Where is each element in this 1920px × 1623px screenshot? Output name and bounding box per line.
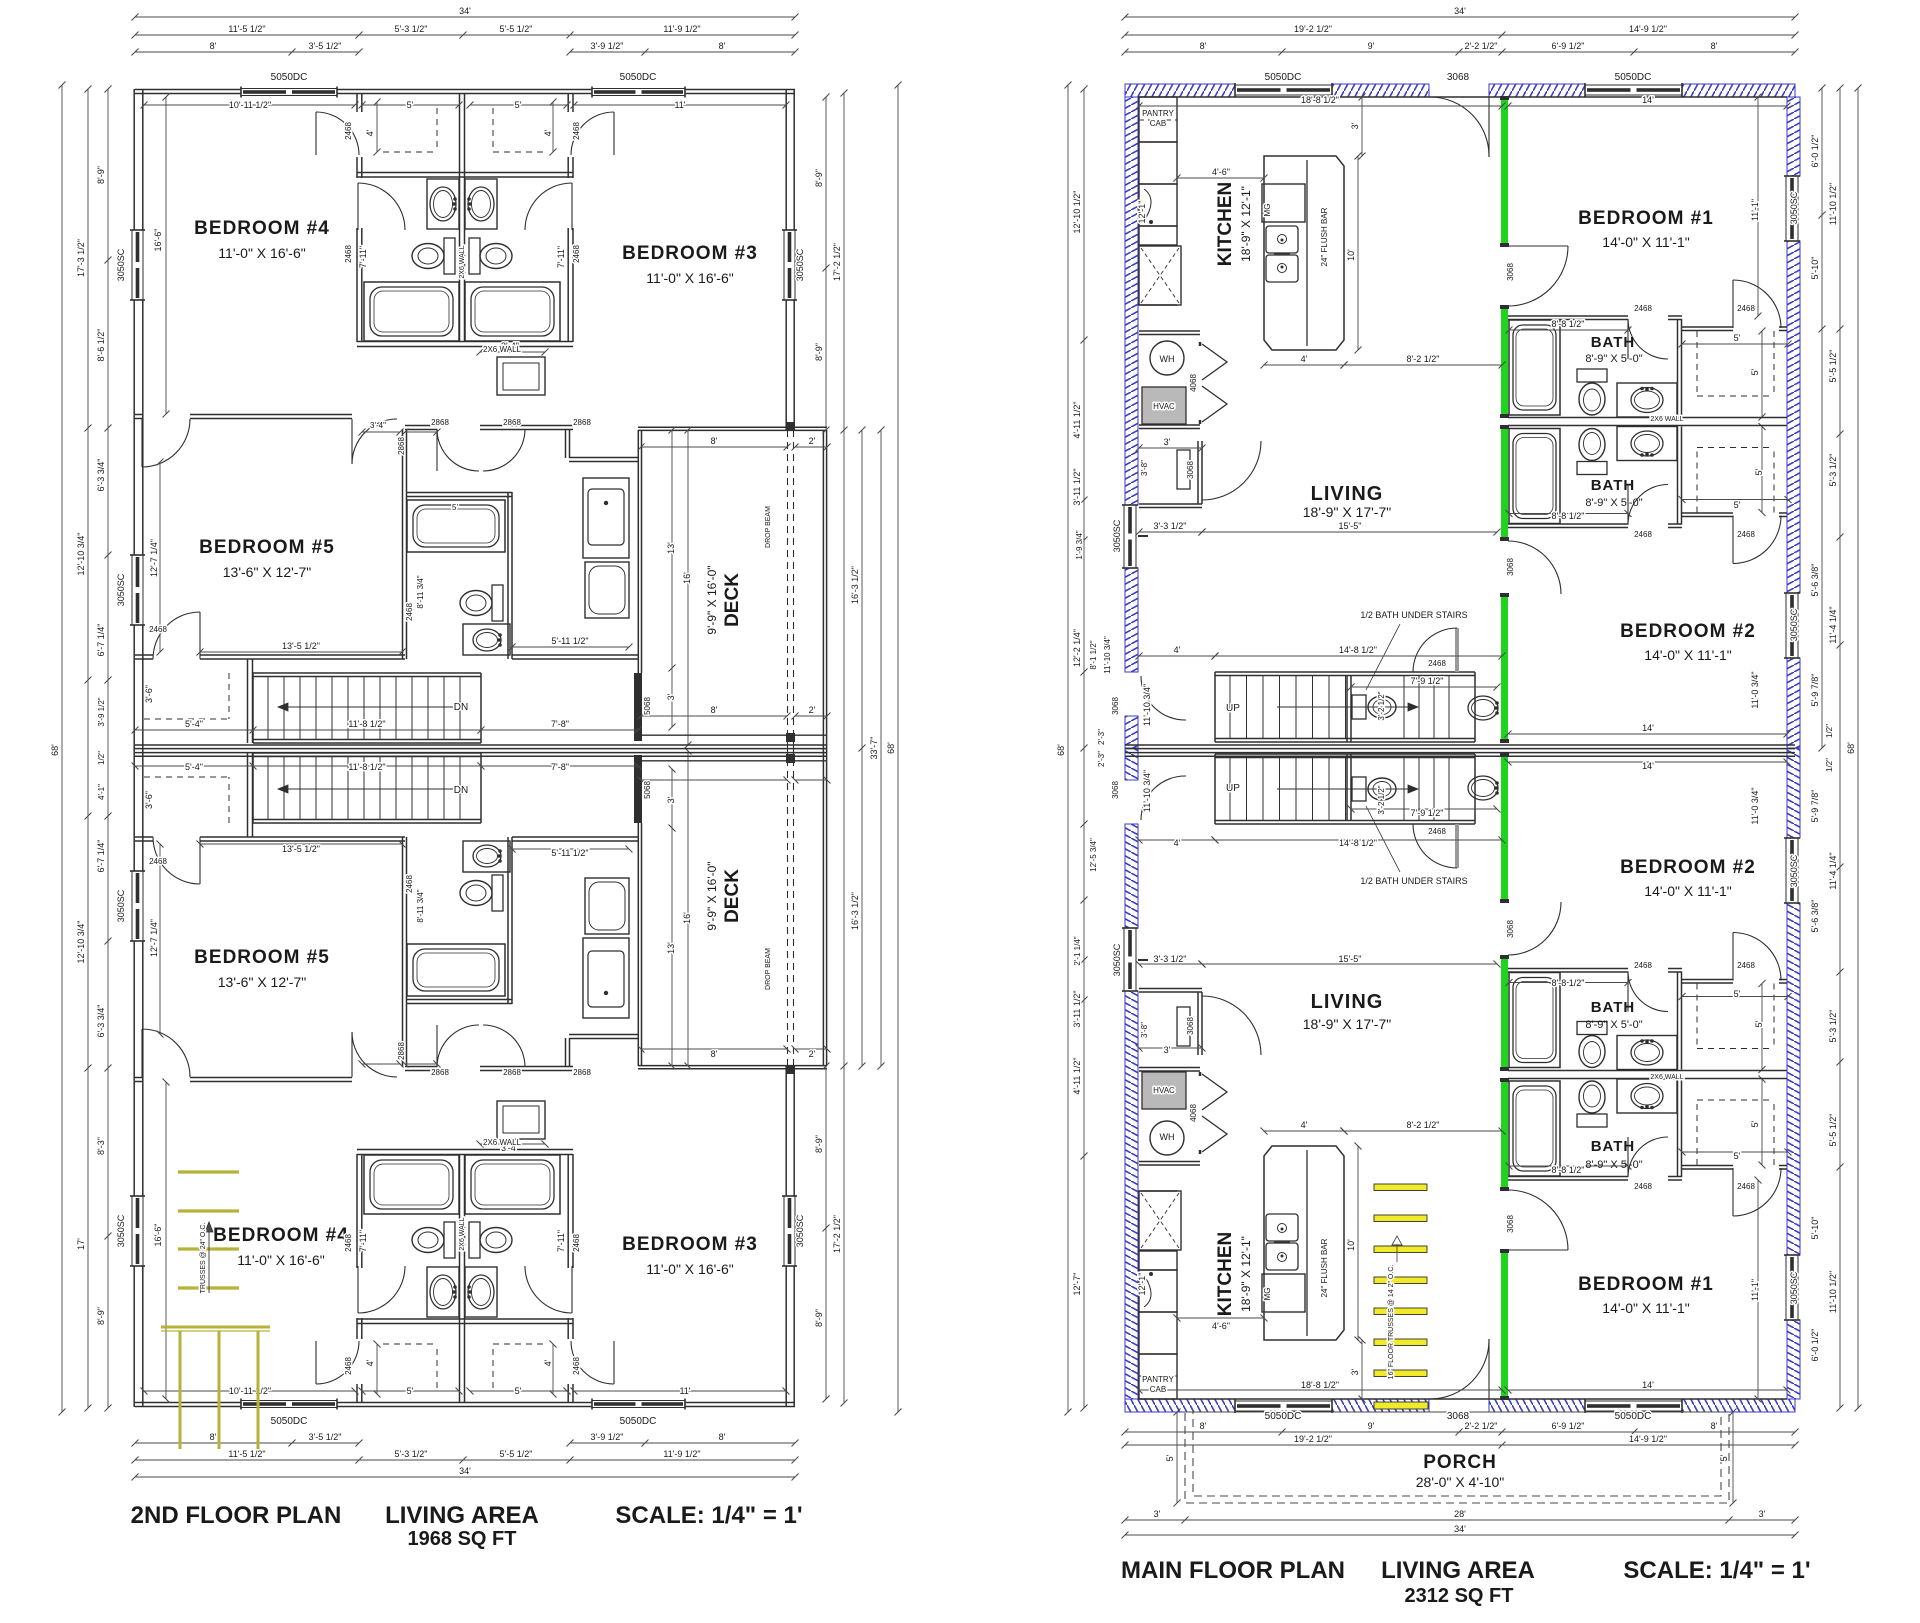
svg-text:8'-8 1/2": 8'-8 1/2" (1552, 511, 1585, 521)
svg-text:8'-3": 8'-3" (96, 1137, 106, 1155)
svg-text:TRUSSES @ 24" O.C.: TRUSSES @ 24" O.C. (200, 1223, 207, 1294)
svg-text:BEDROOM #4: BEDROOM #4 (213, 1225, 349, 1246)
svg-text:5'-4": 5'-4" (185, 762, 203, 772)
svg-text:5': 5' (1750, 368, 1760, 375)
svg-text:2868: 2868 (573, 418, 591, 427)
svg-text:3050SC: 3050SC (1789, 854, 1799, 887)
svg-text:3050SC: 3050SC (116, 1214, 126, 1247)
svg-text:18'-9" X 12'-1": 18'-9" X 12'-1" (1239, 186, 1253, 262)
svg-text:68': 68' (1846, 742, 1856, 754)
svg-text:3'-6": 3'-6" (144, 791, 154, 809)
svg-text:12'-10 3/4": 12'-10 3/4" (76, 533, 86, 576)
svg-text:5050DC: 5050DC (1265, 72, 1302, 83)
svg-text:2868: 2868 (431, 1068, 449, 1077)
svg-text:MAIN FLOOR PLAN: MAIN FLOOR PLAN (1121, 1557, 1345, 1584)
svg-text:11'-10 3/4": 11'-10 3/4" (1142, 770, 1152, 812)
svg-text:3068: 3068 (1111, 697, 1120, 715)
svg-text:14'-0" X 11'-1": 14'-0" X 11'-1" (1602, 1300, 1689, 1316)
svg-text:12'-7 1/4": 12'-7 1/4" (149, 539, 159, 577)
svg-text:6'-0 1/2": 6'-0 1/2" (1810, 135, 1820, 168)
svg-text:17'-2 1/2": 17'-2 1/2" (832, 1215, 842, 1253)
svg-text:5'-5 1/2": 5'-5 1/2" (500, 24, 533, 34)
svg-text:3'-3 1/2": 3'-3 1/2" (1154, 521, 1187, 531)
svg-text:11'-4 1/4": 11'-4 1/4" (1828, 852, 1838, 889)
svg-text:4': 4' (365, 129, 375, 136)
svg-text:11'-9 1/2": 11'-9 1/2" (663, 24, 700, 34)
svg-text:5': 5' (1734, 1151, 1741, 1161)
svg-text:19'-2 1/2": 19'-2 1/2" (1294, 24, 1332, 34)
svg-text:4': 4' (1174, 645, 1181, 655)
svg-text:11'-0" X 16'-6": 11'-0" X 16'-6" (646, 1261, 733, 1277)
svg-text:5'-6 3/8": 5'-6 3/8" (1810, 900, 1820, 933)
svg-text:DECK: DECK (722, 573, 743, 627)
svg-text:1/2": 1/2" (1825, 758, 1834, 772)
svg-text:5': 5' (1750, 1120, 1760, 1127)
svg-text:2468: 2468 (344, 122, 353, 140)
svg-text:2468: 2468 (344, 1357, 353, 1375)
svg-text:5': 5' (407, 100, 414, 110)
svg-text:11'-4 1/4": 11'-4 1/4" (1828, 606, 1838, 643)
svg-text:BEDROOM #2: BEDROOM #2 (1620, 857, 1756, 878)
svg-text:8': 8' (711, 705, 718, 715)
svg-text:2468: 2468 (572, 245, 581, 263)
svg-text:8'-8 1/2": 8'-8 1/2" (1552, 978, 1585, 988)
svg-text:16'-3 1/2": 16'-3 1/2" (850, 892, 860, 930)
svg-text:16'-3 1/2": 16'-3 1/2" (850, 566, 860, 604)
svg-text:2868: 2868 (503, 1068, 521, 1077)
svg-text:4': 4' (1301, 1120, 1308, 1130)
svg-text:5'-5 1/2": 5'-5 1/2" (1828, 350, 1838, 383)
svg-text:5': 5' (1165, 1454, 1175, 1461)
svg-text:12'-2 1/4": 12'-2 1/4" (1072, 629, 1082, 667)
svg-text:DROP BEAM: DROP BEAM (765, 506, 772, 548)
svg-text:11'-10 1/2": 11'-10 1/2" (1828, 1271, 1838, 1313)
svg-text:11'-0" X 16'-6": 11'-0" X 16'-6" (218, 245, 305, 261)
svg-text:24" FLUSH BAR: 24" FLUSH BAR (1320, 1238, 1329, 1297)
svg-text:2868: 2868 (431, 418, 449, 427)
svg-text:12'-7 1/4": 12'-7 1/4" (149, 919, 159, 957)
svg-text:2468: 2468 (572, 122, 581, 140)
svg-text:14': 14' (1642, 723, 1654, 733)
svg-text:4': 4' (1174, 838, 1181, 848)
svg-text:2468: 2468 (1737, 530, 1755, 539)
svg-text:6'-7 1/4": 6'-7 1/4" (96, 624, 106, 657)
svg-text:8'-9": 8'-9" (96, 1307, 106, 1325)
svg-text:8'-11 3/4": 8'-11 3/4" (416, 575, 425, 608)
svg-text:11'-1": 11'-1" (1750, 1279, 1760, 1301)
svg-text:33'-7": 33'-7" (869, 737, 879, 760)
svg-text:12'-10 1/2": 12'-10 1/2" (1072, 191, 1082, 234)
svg-text:8'-9": 8'-9" (814, 1309, 824, 1327)
svg-text:8'-8 1/2": 8'-8 1/2" (1552, 1165, 1585, 1175)
svg-text:4'-11 1/2": 4'-11 1/2" (1072, 1057, 1082, 1094)
svg-text:2468: 2468 (149, 857, 167, 866)
svg-text:5'-5 1/2": 5'-5 1/2" (1828, 1114, 1838, 1147)
svg-text:8'-8 1/2": 8'-8 1/2" (1552, 319, 1585, 329)
svg-text:3'-8": 3'-8" (1140, 460, 1149, 476)
svg-text:14'-0" X 11'-1": 14'-0" X 11'-1" (1644, 883, 1731, 899)
svg-text:7'-9 1/2": 7'-9 1/2" (1411, 676, 1444, 686)
svg-text:1/2": 1/2" (1825, 724, 1834, 738)
svg-text:3068: 3068 (1111, 781, 1120, 799)
svg-text:4': 4' (543, 129, 553, 136)
svg-text:5050DC: 5050DC (620, 1416, 657, 1427)
svg-text:2468: 2468 (1634, 1182, 1652, 1191)
svg-text:2'-2 1/2": 2'-2 1/2" (1465, 1421, 1498, 1431)
svg-text:18'-9" X 17'-7": 18'-9" X 17'-7" (1303, 504, 1391, 520)
svg-text:11'-5 1/2": 11'-5 1/2" (228, 1449, 265, 1459)
svg-text:2'-1 1/4": 2'-1 1/4" (1073, 936, 1082, 965)
svg-text:8'-9" X 5'-0": 8'-9" X 5'-0" (1585, 353, 1642, 365)
svg-text:11'-0 3/4": 11'-0 3/4" (1750, 787, 1760, 824)
svg-text:LIVING: LIVING (1311, 483, 1384, 505)
svg-text:UP: UP (1226, 703, 1240, 714)
svg-text:11'-10 3/4": 11'-10 3/4" (1142, 684, 1152, 726)
svg-text:11'-1": 11'-1" (1750, 199, 1760, 221)
svg-text:18'-8 1/2": 18'-8 1/2" (1301, 95, 1339, 105)
svg-text:6'-0 1/2": 6'-0 1/2" (1810, 1329, 1820, 1362)
svg-text:4': 4' (1301, 354, 1308, 364)
svg-text:BEDROOM #1: BEDROOM #1 (1578, 208, 1714, 229)
svg-text:2868: 2868 (397, 437, 406, 455)
svg-text:3'-2 1/2": 3'-2 1/2" (1377, 691, 1386, 720)
svg-text:14'-9 1/2": 14'-9 1/2" (1629, 1434, 1667, 1444)
svg-text:BEDROOM #2: BEDROOM #2 (1620, 621, 1756, 642)
svg-text:7'-11": 7'-11" (556, 246, 566, 268)
svg-text:5050DC: 5050DC (271, 72, 308, 83)
svg-text:4': 4' (543, 1359, 553, 1366)
svg-text:9': 9' (1368, 1421, 1375, 1431)
svg-text:5': 5' (1734, 500, 1741, 510)
svg-text:BEDROOM #1: BEDROOM #1 (1578, 1274, 1714, 1295)
svg-text:2': 2' (809, 705, 816, 715)
svg-text:BATH: BATH (1591, 999, 1636, 1016)
svg-text:3'-2 1/2": 3'-2 1/2" (1377, 785, 1386, 814)
svg-text:2468: 2468 (572, 1234, 581, 1252)
svg-text:5050DC: 5050DC (271, 1416, 308, 1427)
svg-text:5': 5' (1734, 333, 1741, 343)
svg-text:8'-2 1/2": 8'-2 1/2" (1407, 1120, 1440, 1130)
svg-text:11'-5 1/2": 11'-5 1/2" (228, 24, 265, 34)
svg-text:3050SC: 3050SC (116, 889, 126, 922)
svg-text:8'-9": 8'-9" (814, 169, 824, 187)
svg-text:BEDROOM #5: BEDROOM #5 (199, 537, 335, 558)
svg-text:3'-9 1/2": 3'-9 1/2" (591, 1432, 624, 1442)
svg-text:1/2 BATH UNDER STAIRS: 1/2 BATH UNDER STAIRS (1360, 876, 1467, 886)
svg-text:3': 3' (1350, 122, 1360, 129)
svg-text:13'-5 1/2": 13'-5 1/2" (282, 641, 320, 651)
svg-text:2': 2' (809, 1049, 816, 1059)
svg-text:11'-10 1/2": 11'-10 1/2" (1828, 183, 1838, 225)
svg-text:1968 SQ FT: 1968 SQ FT (408, 1528, 517, 1550)
svg-text:DROP BEAM: DROP BEAM (765, 948, 772, 990)
svg-text:UP: UP (1226, 783, 1240, 794)
svg-text:5': 5' (1734, 989, 1741, 999)
svg-text:5': 5' (1754, 1020, 1764, 1027)
svg-text:KITCHEN: KITCHEN (1215, 1232, 1236, 1316)
svg-text:11'-10 3/4": 11'-10 3/4" (1103, 636, 1112, 674)
svg-text:WH: WH (1160, 1132, 1175, 1142)
svg-text:6'-3 3/4": 6'-3 3/4" (96, 459, 106, 492)
svg-text:2X6 WALL: 2X6 WALL (1650, 1074, 1683, 1081)
svg-text:3068: 3068 (1186, 461, 1195, 479)
svg-text:DECK: DECK (722, 869, 743, 923)
svg-text:13': 13' (666, 542, 676, 554)
svg-text:2468: 2468 (1737, 304, 1755, 313)
svg-text:5'-11 1/2": 5'-11 1/2" (551, 848, 588, 858)
svg-text:8'-11 3/4": 8'-11 3/4" (416, 889, 425, 922)
svg-text:3': 3' (1154, 1509, 1161, 1519)
svg-text:5': 5' (1719, 1454, 1729, 1461)
svg-text:8'-6 1/2": 8'-6 1/2" (96, 329, 106, 362)
svg-text:BEDROOM #4: BEDROOM #4 (194, 218, 330, 239)
svg-text:16" FLOOR TRUSSES @ 14 2" O.C.: 16" FLOOR TRUSSES @ 14 2" O.C. (1388, 1265, 1395, 1380)
svg-text:KITCHEN: KITCHEN (1215, 182, 1236, 266)
svg-text:2468: 2468 (1737, 1182, 1755, 1191)
svg-text:14'-0" X 11'-1": 14'-0" X 11'-1" (1602, 234, 1689, 250)
svg-text:5': 5' (452, 503, 458, 512)
svg-text:4068: 4068 (1189, 1104, 1198, 1122)
svg-text:2ND FLOOR PLAN: 2ND FLOOR PLAN (131, 1502, 342, 1529)
svg-text:5'-4": 5'-4" (185, 719, 203, 729)
svg-text:10': 10' (1346, 249, 1356, 261)
svg-text:CAB: CAB (1150, 1385, 1166, 1394)
svg-text:34': 34' (1454, 1524, 1466, 1534)
svg-text:3'-11 1/2": 3'-11 1/2" (1072, 990, 1082, 1027)
svg-text:2X6 WALL: 2X6 WALL (483, 345, 521, 354)
svg-text:3050SC: 3050SC (116, 248, 126, 281)
svg-text:5050DC: 5050DC (620, 72, 657, 83)
svg-text:8'-9" X 5'-0": 8'-9" X 5'-0" (1585, 1019, 1642, 1031)
svg-text:3050SC: 3050SC (1789, 191, 1799, 224)
svg-text:2868: 2868 (397, 1042, 406, 1060)
svg-text:3068: 3068 (1506, 1215, 1515, 1233)
svg-text:12'-5 3/4": 12'-5 3/4" (1089, 838, 1098, 872)
svg-text:15'-5": 15'-5" (1339, 521, 1362, 531)
svg-text:18'-9" X 17'-7": 18'-9" X 17'-7" (1303, 1016, 1391, 1032)
svg-text:11'-8 1/2": 11'-8 1/2" (348, 719, 385, 729)
svg-text:5'-11 1/2": 5'-11 1/2" (551, 636, 588, 646)
svg-text:2468: 2468 (344, 245, 353, 263)
svg-text:3': 3' (1350, 1368, 1360, 1375)
svg-text:3050SC: 3050SC (1112, 943, 1122, 976)
svg-text:14': 14' (1642, 1380, 1654, 1390)
svg-text:5'-3 1/2": 5'-3 1/2" (395, 24, 428, 34)
svg-text:34': 34' (459, 1466, 471, 1476)
svg-text:8'-1 1/2": 8'-1 1/2" (1089, 640, 1098, 669)
svg-text:11'-8 1/2": 11'-8 1/2" (348, 762, 385, 772)
svg-text:4'-1": 4'-1" (97, 784, 106, 800)
svg-text:SCALE: 1/4" = 1': SCALE: 1/4" = 1' (615, 1502, 802, 1529)
svg-text:LIVING AREA: LIVING AREA (1381, 1557, 1535, 1584)
svg-text:5'-10": 5'-10" (1810, 257, 1820, 280)
svg-text:5'-9 7/8": 5'-9 7/8" (1810, 790, 1820, 823)
svg-text:8'-9" X 5'-0": 8'-9" X 5'-0" (1585, 497, 1642, 509)
svg-text:CAB: CAB (1150, 119, 1166, 128)
svg-text:7'-11": 7'-11" (358, 1230, 368, 1252)
svg-text:10': 10' (1346, 1239, 1356, 1251)
svg-text:8'-2 1/2": 8'-2 1/2" (1407, 354, 1440, 364)
svg-text:18'-9" X 12'-1": 18'-9" X 12'-1" (1239, 1236, 1253, 1312)
svg-text:2468: 2468 (149, 625, 167, 634)
svg-text:13'-6" X 12'-7": 13'-6" X 12'-7" (223, 564, 311, 580)
svg-text:11'-0" X 16'-6": 11'-0" X 16'-6" (646, 270, 733, 286)
svg-text:8': 8' (719, 41, 726, 51)
svg-text:5050DC: 5050DC (1265, 1411, 1302, 1422)
svg-text:6'-3 3/4": 6'-3 3/4" (96, 1005, 106, 1038)
svg-text:17': 17' (76, 1238, 86, 1250)
svg-text:8': 8' (711, 1049, 718, 1059)
svg-text:3': 3' (1164, 437, 1171, 447)
svg-text:5068: 5068 (643, 697, 652, 715)
svg-text:8': 8' (210, 1432, 217, 1442)
svg-text:12'-10 3/4": 12'-10 3/4" (76, 921, 86, 964)
svg-text:3068: 3068 (1506, 263, 1515, 281)
svg-text:7'-9 1/2": 7'-9 1/2" (1411, 808, 1444, 818)
svg-text:4': 4' (365, 1359, 375, 1366)
svg-text:3050SC: 3050SC (1789, 608, 1799, 641)
svg-text:2468: 2468 (1428, 827, 1446, 836)
svg-text:3068: 3068 (1447, 72, 1470, 83)
svg-text:14': 14' (1642, 761, 1654, 771)
svg-text:5': 5' (515, 100, 522, 110)
svg-text:3': 3' (666, 796, 676, 803)
svg-text:13'-5 1/2": 13'-5 1/2" (282, 844, 320, 854)
svg-text:PANTRY: PANTRY (1142, 1375, 1174, 1384)
svg-text:3'-9 1/2": 3'-9 1/2" (97, 697, 106, 726)
svg-text:6'-9 1/2": 6'-9 1/2" (1552, 1421, 1585, 1431)
svg-text:11'-0" X 16'-6": 11'-0" X 16'-6" (237, 1252, 324, 1268)
svg-text:DN: DN (454, 785, 468, 796)
svg-text:MG: MG (1263, 1288, 1272, 1301)
svg-text:7'-11": 7'-11" (556, 1230, 566, 1252)
svg-text:7'-11": 7'-11" (358, 246, 368, 268)
svg-text:16'-6": 16'-6" (153, 1224, 163, 1247)
svg-text:2468: 2468 (572, 1357, 581, 1375)
svg-text:7'-8": 7'-8" (551, 719, 569, 729)
svg-text:2868: 2868 (573, 1068, 591, 1077)
svg-text:6'-9 1/2": 6'-9 1/2" (1552, 41, 1585, 51)
svg-text:5': 5' (407, 1386, 414, 1396)
svg-text:HVAC: HVAC (1153, 1086, 1175, 1095)
svg-text:2': 2' (809, 436, 816, 446)
svg-text:17'-2 1/2": 17'-2 1/2" (832, 243, 842, 281)
svg-text:2312 SQ FT: 2312 SQ FT (1405, 1585, 1514, 1607)
svg-text:3'-8": 3'-8" (1140, 1022, 1149, 1038)
svg-text:24" FLUSH BAR: 24" FLUSH BAR (1320, 207, 1329, 266)
svg-text:5': 5' (1754, 468, 1764, 475)
svg-text:3050SC: 3050SC (116, 573, 126, 606)
svg-text:LIVING: LIVING (1311, 991, 1384, 1013)
svg-text:2X6 WALL: 2X6 WALL (1650, 416, 1683, 423)
svg-text:8'-9": 8'-9" (814, 1135, 824, 1153)
svg-text:13'-6" X 12'-7": 13'-6" X 12'-7" (218, 974, 306, 990)
svg-text:3': 3' (1164, 1045, 1171, 1055)
svg-text:3050SC: 3050SC (795, 1214, 805, 1247)
svg-text:16'-6": 16'-6" (153, 229, 163, 252)
svg-text:2468: 2468 (1634, 961, 1652, 970)
svg-text:5050DC: 5050DC (1615, 72, 1652, 83)
svg-text:3068: 3068 (1506, 558, 1515, 576)
svg-text:16': 16' (682, 912, 692, 924)
svg-text:1'-9 3/4": 1'-9 3/4" (1075, 530, 1084, 559)
svg-text:14'-8 1/2": 14'-8 1/2" (1339, 645, 1377, 655)
svg-text:19'-2 1/2": 19'-2 1/2" (1294, 1434, 1332, 1444)
svg-text:8'-9": 8'-9" (814, 343, 824, 361)
svg-text:8': 8' (1711, 1421, 1718, 1431)
svg-text:2468: 2468 (344, 1234, 353, 1252)
svg-text:3': 3' (666, 693, 676, 700)
svg-text:28'-0" X 4'-10": 28'-0" X 4'-10" (1416, 1474, 1504, 1490)
svg-text:3'-4": 3'-4" (370, 421, 386, 430)
svg-text:5'-5 1/2": 5'-5 1/2" (500, 1449, 533, 1459)
svg-text:3'-5 1/2": 3'-5 1/2" (309, 41, 342, 51)
svg-text:16': 16' (682, 572, 692, 584)
svg-text:DN: DN (454, 702, 468, 713)
svg-text:2X6 WALL: 2X6 WALL (483, 1138, 521, 1147)
svg-text:2468: 2468 (1634, 530, 1652, 539)
svg-text:2468: 2468 (1428, 659, 1446, 668)
svg-text:2'-2 1/2": 2'-2 1/2" (1465, 41, 1498, 51)
svg-text:5'-3 1/2": 5'-3 1/2" (1828, 454, 1838, 487)
svg-text:PANTRY: PANTRY (1142, 109, 1174, 118)
svg-text:3'-3 1/2": 3'-3 1/2" (1154, 954, 1187, 964)
svg-text:34': 34' (459, 6, 471, 16)
svg-text:11': 11' (674, 100, 685, 110)
svg-text:6'-7 1/4": 6'-7 1/4" (96, 840, 106, 873)
svg-text:3'-9 1/2": 3'-9 1/2" (591, 41, 624, 51)
svg-text:HVAC: HVAC (1153, 402, 1175, 411)
svg-text:5'-9 7/8": 5'-9 7/8" (1810, 674, 1820, 707)
svg-text:1/2": 1/2" (97, 751, 106, 765)
svg-text:BEDROOM #3: BEDROOM #3 (622, 243, 758, 264)
svg-text:5'-6 3/8": 5'-6 3/8" (1810, 564, 1820, 597)
svg-text:2'-3": 2'-3" (1097, 751, 1106, 767)
svg-text:3'-11 1/2": 3'-11 1/2" (1072, 468, 1082, 505)
svg-text:3'-5 1/2": 3'-5 1/2" (309, 1432, 342, 1442)
svg-text:2X6 WALL: 2X6 WALL (459, 1217, 466, 1250)
svg-text:12'-1": 12'-1" (1137, 1273, 1147, 1296)
svg-text:2'-3": 2'-3" (1097, 729, 1106, 745)
svg-text:2468: 2468 (405, 875, 414, 893)
svg-text:8': 8' (1200, 1421, 1207, 1431)
svg-text:5'-3 1/2": 5'-3 1/2" (1828, 1010, 1838, 1043)
svg-text:3050SC: 3050SC (795, 248, 805, 281)
svg-text:14'-8 1/2": 14'-8 1/2" (1339, 838, 1377, 848)
svg-text:8': 8' (210, 41, 217, 51)
svg-text:13': 13' (666, 942, 676, 954)
svg-text:3068: 3068 (1186, 1017, 1195, 1035)
svg-text:68': 68' (1056, 744, 1066, 756)
svg-text:8': 8' (711, 436, 718, 446)
svg-text:18'-8 1/2": 18'-8 1/2" (1301, 1380, 1339, 1390)
svg-text:2868: 2868 (503, 418, 521, 427)
svg-text:MG: MG (1263, 204, 1272, 217)
svg-text:BEDROOM #5: BEDROOM #5 (194, 947, 330, 968)
svg-text:5050DC: 5050DC (1615, 1411, 1652, 1422)
svg-text:9': 9' (1368, 41, 1375, 51)
svg-text:5': 5' (515, 1386, 522, 1396)
svg-text:12'-1": 12'-1" (1137, 201, 1147, 224)
svg-text:3': 3' (1759, 1509, 1766, 1519)
svg-text:14'-0" X 11'-1": 14'-0" X 11'-1" (1644, 647, 1731, 663)
svg-text:4'-6": 4'-6" (1212, 167, 1230, 177)
svg-text:10'-11 1/2": 10'-11 1/2" (229, 1386, 271, 1396)
svg-text:8': 8' (719, 1432, 726, 1442)
svg-text:3068: 3068 (1506, 920, 1515, 938)
svg-text:15'-5": 15'-5" (1339, 954, 1362, 964)
svg-text:BATH: BATH (1591, 1138, 1636, 1155)
